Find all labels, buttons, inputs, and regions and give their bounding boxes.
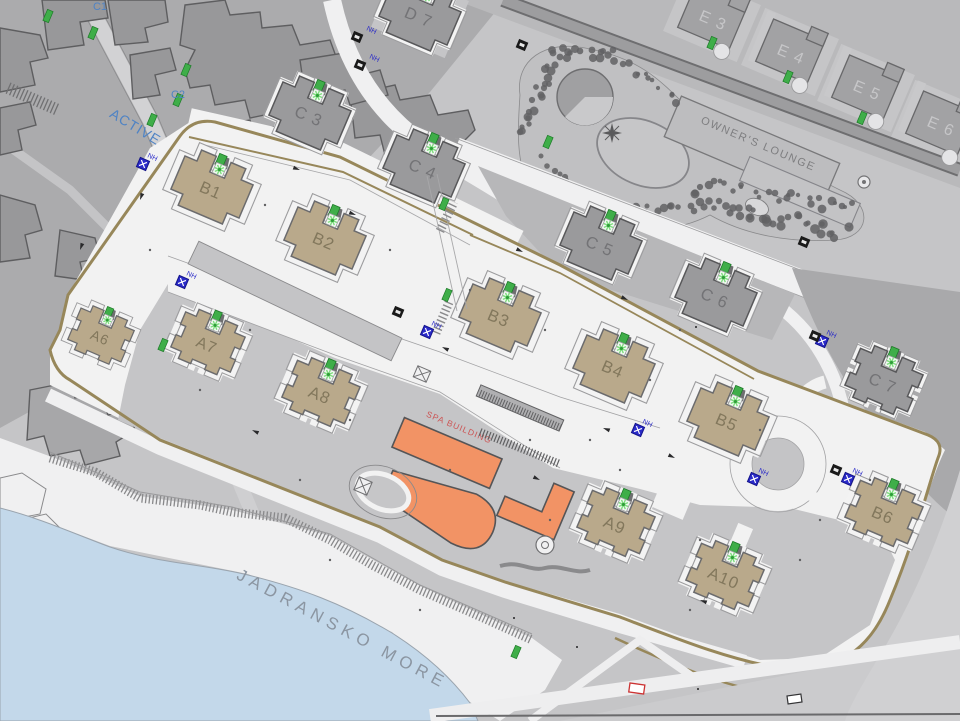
svg-text:C2: C2 <box>171 89 185 101</box>
svg-text:C1: C1 <box>93 1 107 13</box>
